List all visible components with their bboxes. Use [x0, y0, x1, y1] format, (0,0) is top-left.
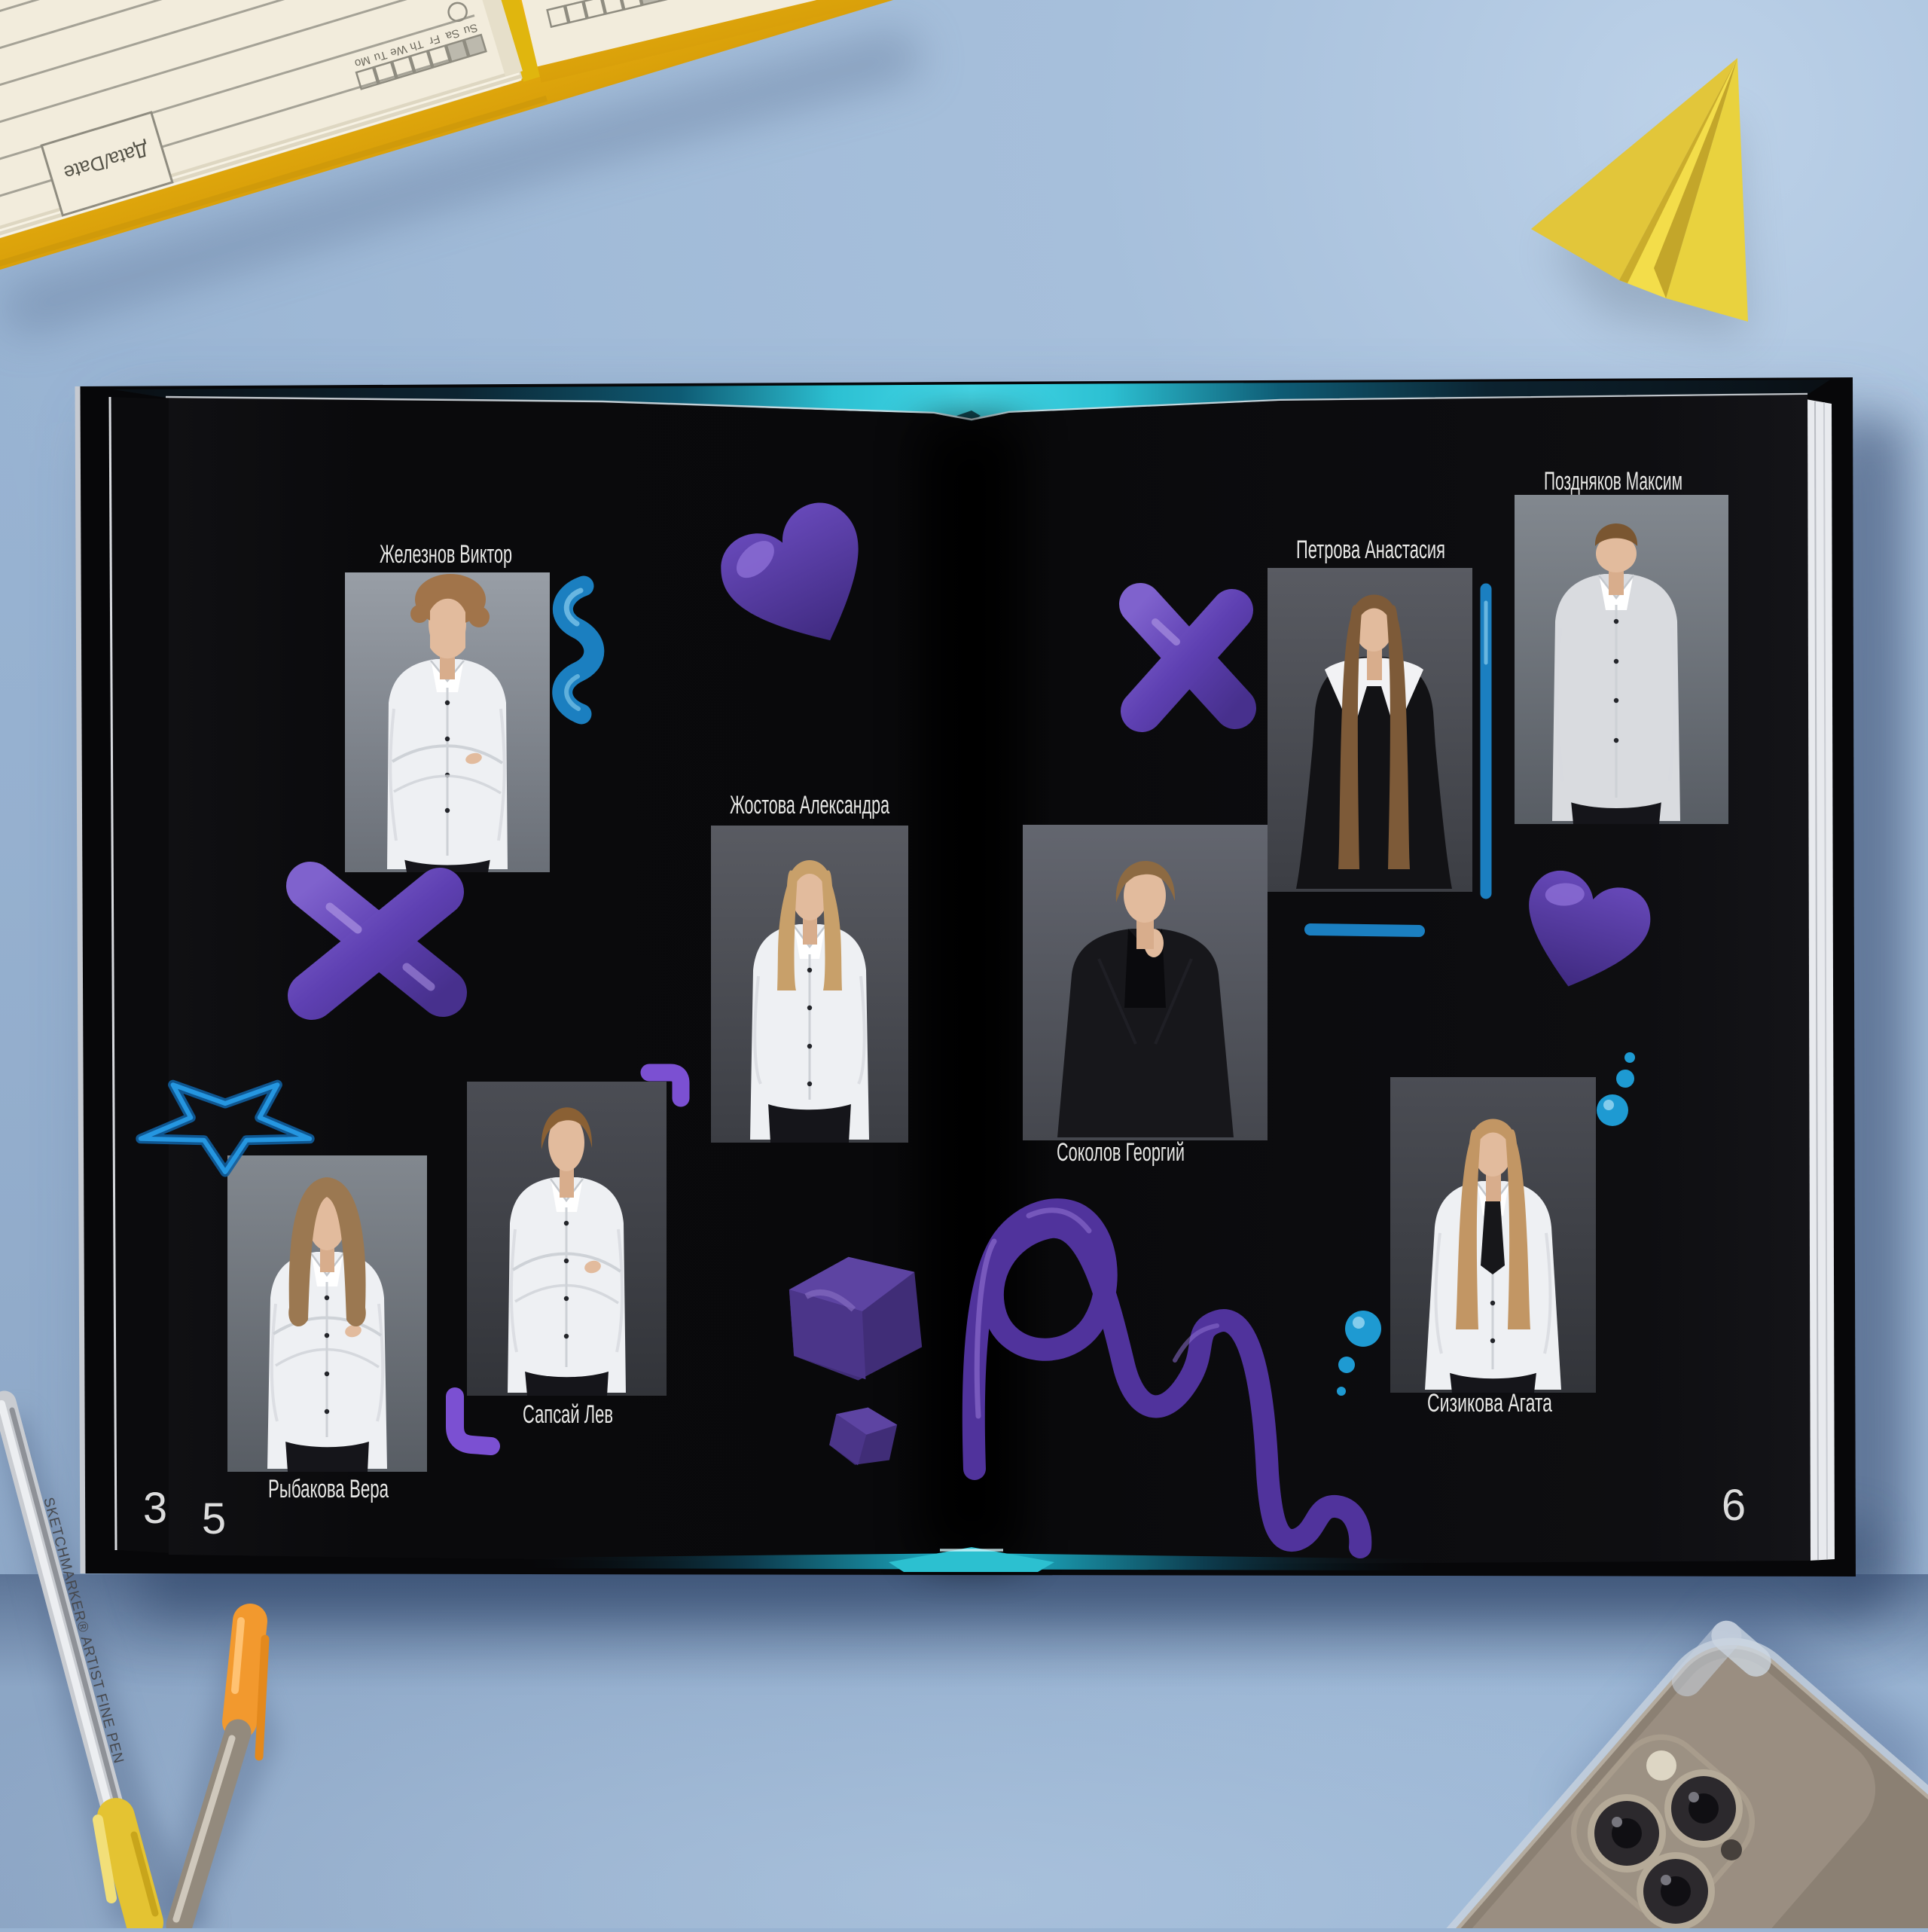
svg-text:5: 5: [202, 1494, 226, 1543]
svg-text:Соколов Георгий: Соколов Георгий: [1057, 1138, 1185, 1167]
svg-text:Жостова Александра: Жостова Александра: [730, 791, 889, 819]
svg-text:Рыбакова Вера: Рыбакова Вера: [268, 1475, 389, 1503]
svg-text:3: 3: [143, 1484, 167, 1533]
svg-text:Сизикова Агата: Сизикова Агата: [1427, 1389, 1552, 1418]
svg-text:Сапсай Лев: Сапсай Лев: [523, 1400, 613, 1429]
svg-text:Петрова Анастасия: Петрова Анастасия: [1296, 536, 1445, 564]
svg-text:6: 6: [1722, 1481, 1746, 1530]
svg-text:Железнов Виктор: Железнов Виктор: [380, 540, 512, 569]
svg-text:Поздняков Максим: Поздняков Максим: [1544, 467, 1682, 496]
